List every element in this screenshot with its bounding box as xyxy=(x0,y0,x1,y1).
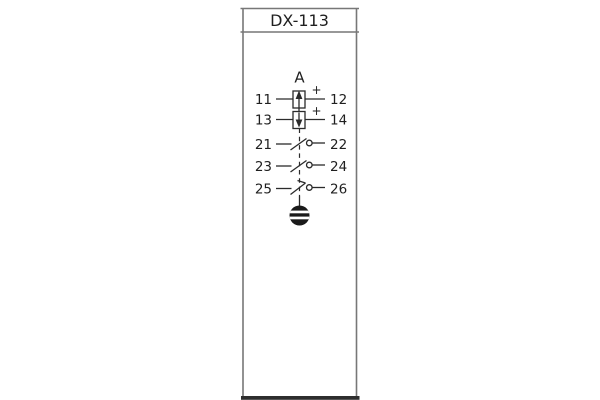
terminal-23-label: 23 xyxy=(255,159,272,175)
contact-23-24-icon xyxy=(291,161,313,173)
terminal-13-label: 13 xyxy=(255,113,272,129)
terminal-14-label: 14 xyxy=(330,113,347,129)
device-model-title: DX-113 xyxy=(270,11,329,30)
terminal-row-25-26: 25 26 xyxy=(255,181,347,198)
terminal-26-label: 26 xyxy=(330,182,347,198)
terminal-24-label: 24 xyxy=(330,159,347,175)
terminal-row-11-12: 11 + 12 xyxy=(255,83,347,108)
measuring-element-down-icon xyxy=(293,112,305,129)
contact-25-26-hooked-icon xyxy=(291,181,313,195)
diagram-canvas: DX-113 A 11 + 12 13 xyxy=(0,0,600,400)
element-label: A xyxy=(294,69,305,87)
relay-terminal-diagram: DX-113 A 11 + 12 13 xyxy=(0,0,600,400)
polarity-plus-row2: + xyxy=(311,104,321,118)
contact-21-22-icon xyxy=(291,139,313,151)
polarity-plus-row1: + xyxy=(311,83,321,97)
terminal-12-label: 12 xyxy=(330,92,347,108)
terminal-21-label: 21 xyxy=(255,137,272,153)
terminal-22-label: 22 xyxy=(330,137,347,153)
terminal-11-label: 11 xyxy=(255,92,272,108)
frame-base-bar xyxy=(241,396,360,400)
measuring-element-up-icon xyxy=(293,91,305,109)
terminal-25-label: 25 xyxy=(255,182,272,198)
target-indicator-icon xyxy=(288,196,311,226)
terminal-row-23-24: 23 24 xyxy=(255,159,347,175)
terminal-row-21-22: 21 22 xyxy=(255,137,347,153)
